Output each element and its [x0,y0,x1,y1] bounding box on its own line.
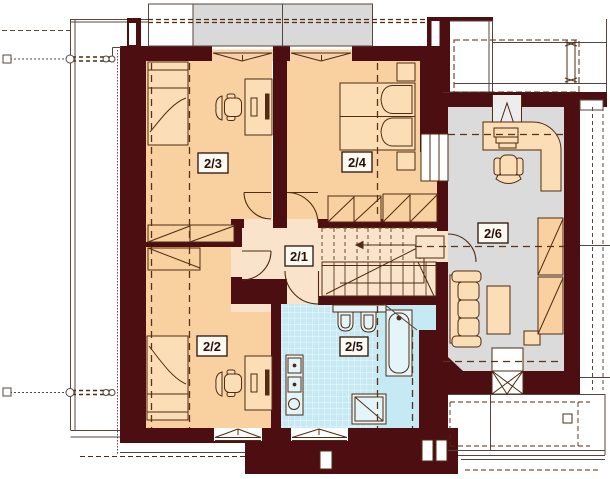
svg-text:2/2: 2/2 [203,339,221,354]
svg-text:2/6: 2/6 [484,226,502,241]
svg-text:2/1: 2/1 [290,249,308,264]
svg-text:2/5: 2/5 [345,339,363,354]
svg-text:2/4: 2/4 [348,155,367,170]
svg-text:2/3: 2/3 [204,156,222,171]
